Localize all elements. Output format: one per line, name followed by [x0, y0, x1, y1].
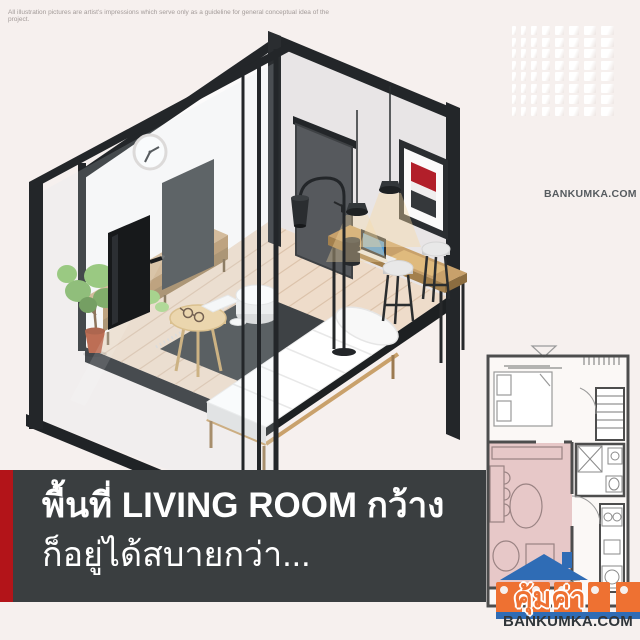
watermark-site-text: BANKUMKA.COM: [544, 188, 637, 200]
glass-partition: [26, 41, 292, 521]
poster-canvas: All illustration pictures are artist's i…: [0, 0, 640, 640]
caption-line2: ก็อยู่ได้สบายกว่า...: [42, 532, 444, 578]
caption-band-accent: [0, 470, 13, 602]
caption-line1: พื้นที่ LIVING ROOM กว้าง: [42, 480, 444, 532]
floor-plan-bathroom: [576, 444, 624, 496]
logo-site-text: BANKUMKA.COM: [494, 613, 640, 630]
caption-text: พื้นที่ LIVING ROOM กว้าง ก็อยู่ได้สบายก…: [42, 480, 444, 578]
floor-plan-bed: [494, 372, 552, 426]
